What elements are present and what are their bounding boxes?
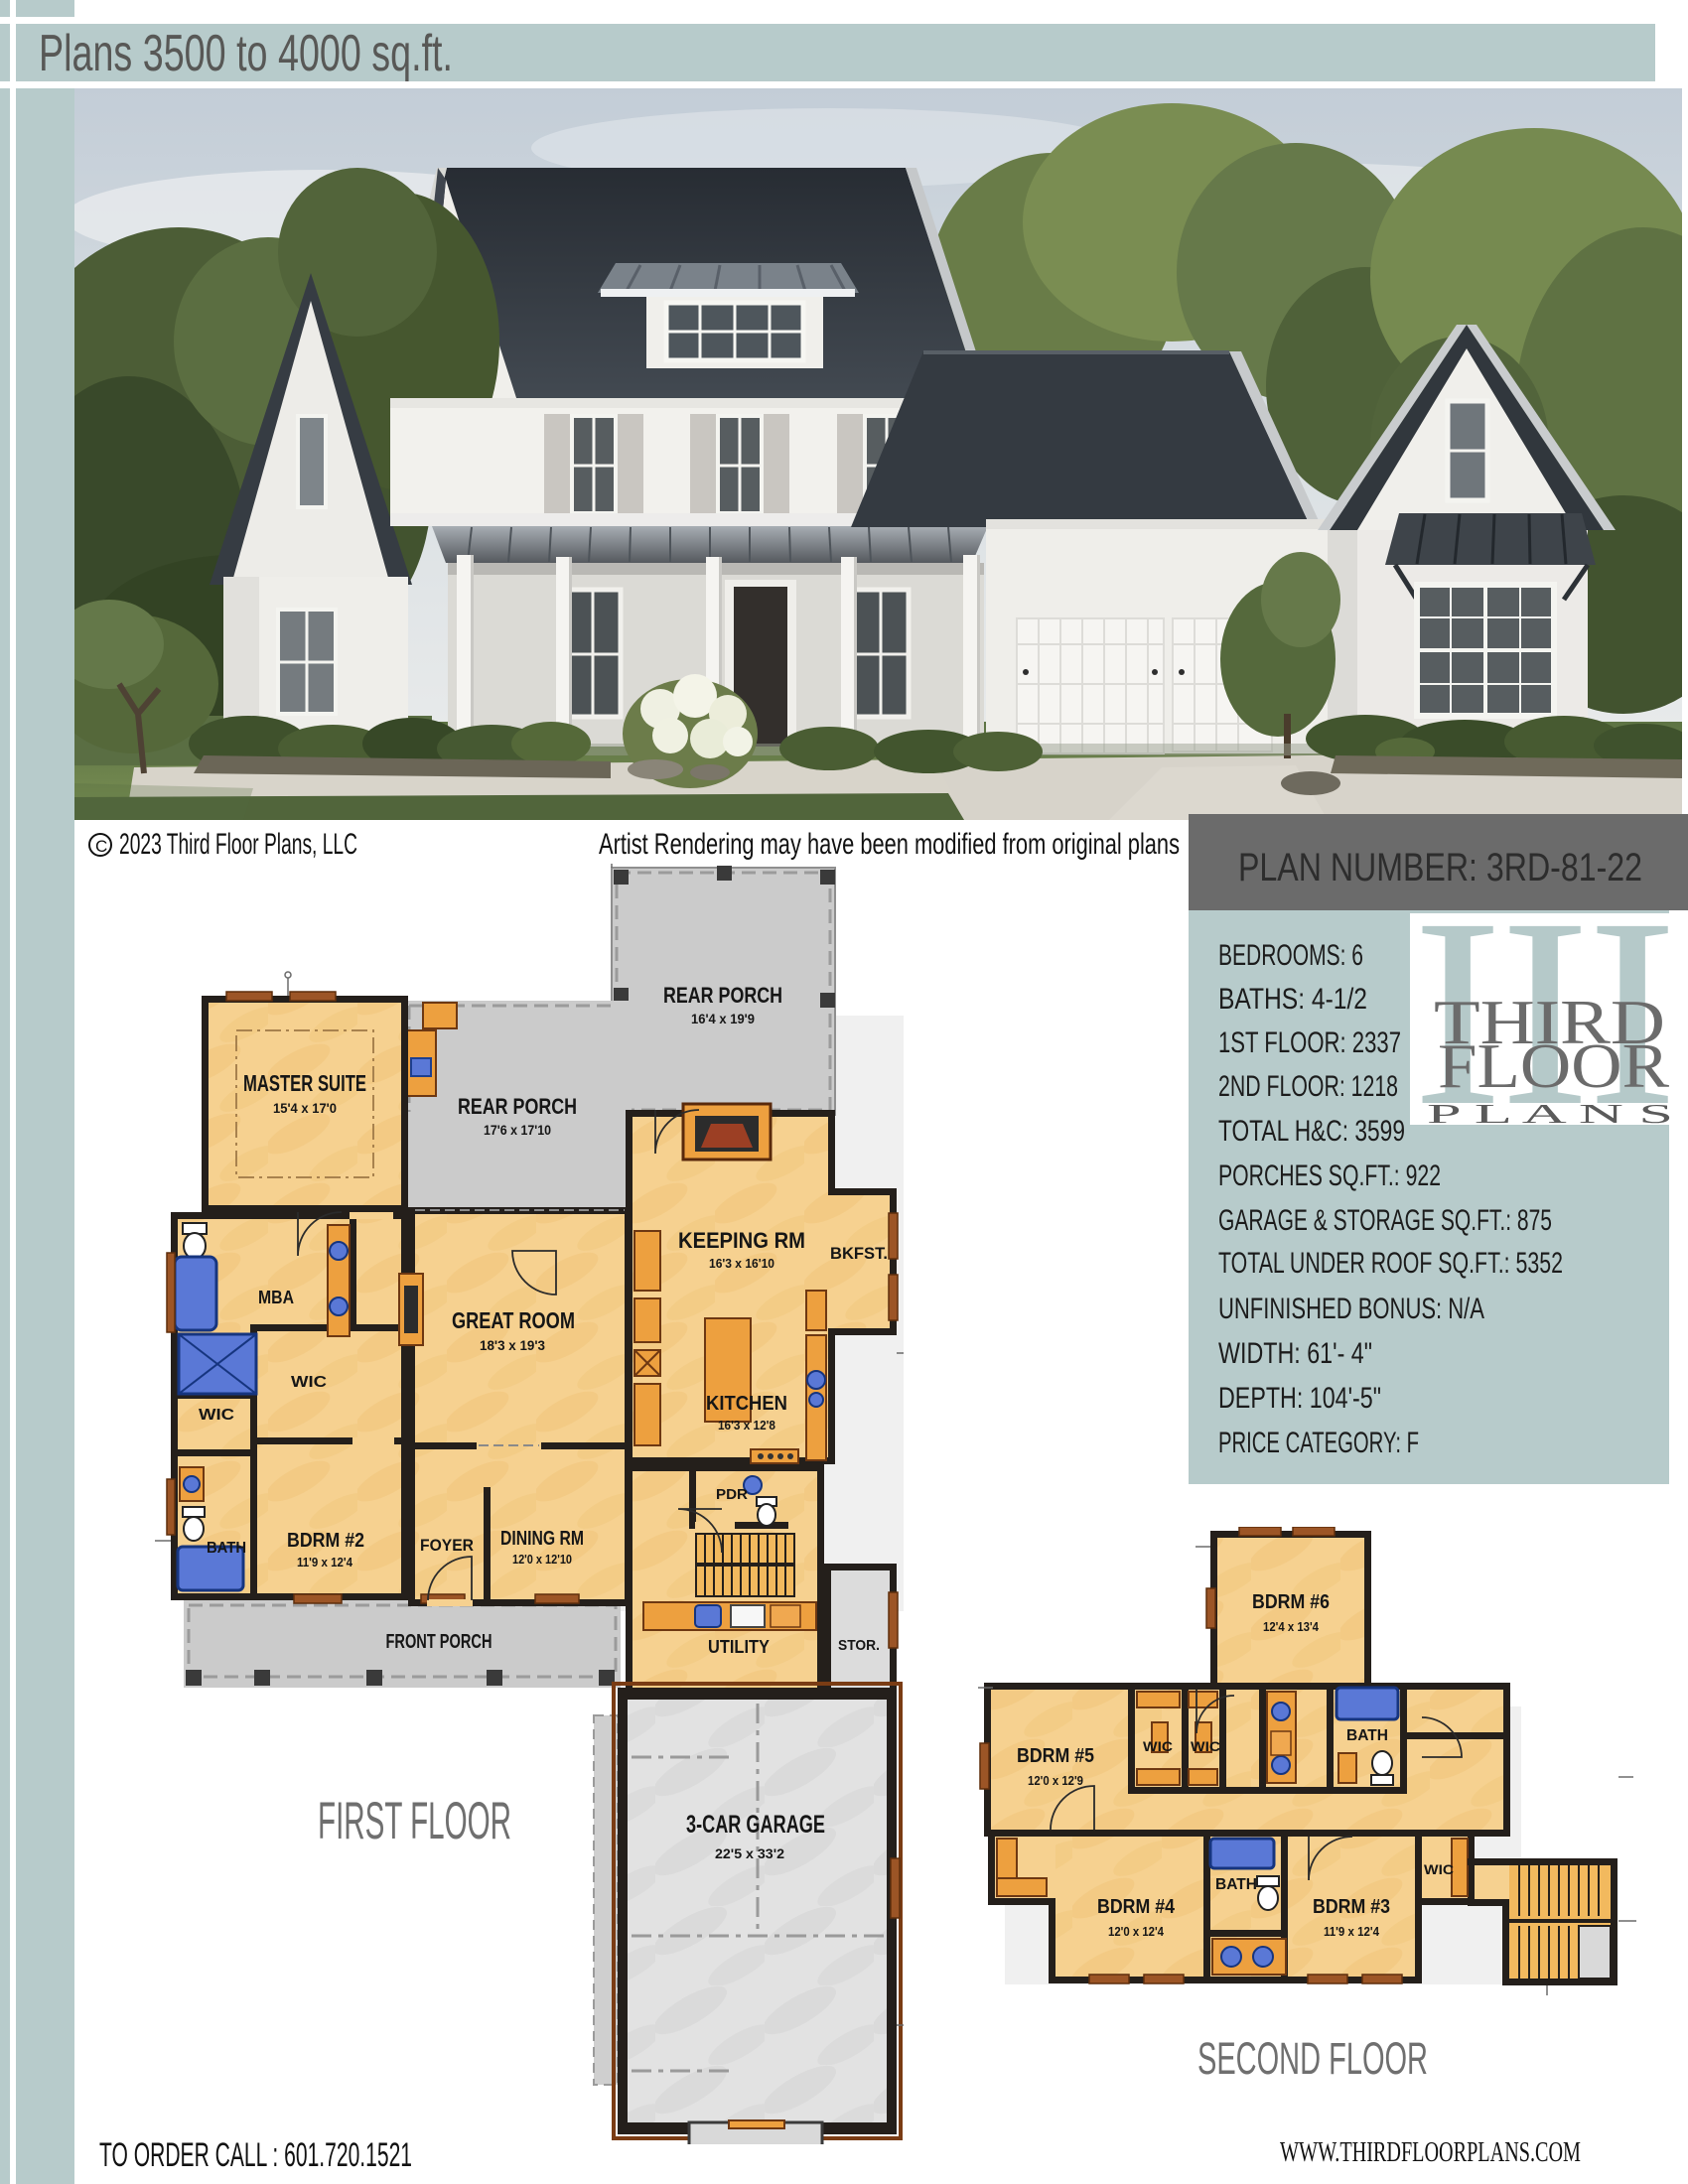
svg-text:UNFINISHED BONUS: N/A: UNFINISHED BONUS: N/A [1218, 1293, 1484, 1325]
svg-text:WIC: WIC [199, 1407, 235, 1424]
svg-text:12'0 x 12'4: 12'0 x 12'4 [1108, 1924, 1165, 1939]
svg-text:BATH: BATH [207, 1540, 246, 1557]
svg-text:BATH: BATH [1346, 1727, 1388, 1744]
svg-text:BATH: BATH [1215, 1876, 1257, 1893]
svg-text:BATHS: 4-1/2: BATHS: 4-1/2 [1218, 983, 1367, 1016]
svg-text:DINING RM: DINING RM [500, 1528, 584, 1550]
svg-text:P L A N S: P L A N S [1427, 1099, 1670, 1125]
svg-text:REAR PORCH: REAR PORCH [663, 983, 782, 1008]
svg-text:16'3 x 16'10: 16'3 x 16'10 [709, 1256, 774, 1271]
svg-text:22'5 x 33'2: 22'5 x 33'2 [715, 1845, 784, 1861]
svg-text:WIDTH: 61'- 4": WIDTH: 61'- 4" [1218, 1337, 1372, 1370]
svg-text:11'9 x 12'4: 11'9 x 12'4 [297, 1555, 353, 1570]
svg-text:SECOND FLOOR: SECOND FLOOR [1197, 2033, 1428, 2084]
svg-text:MASTER SUITE: MASTER SUITE [243, 1070, 366, 1096]
svg-text:2ND FLOOR: 1218: 2ND FLOOR: 1218 [1218, 1070, 1398, 1103]
svg-text:BKFST.: BKFST. [830, 1244, 888, 1263]
svg-text:REAR PORCH: REAR PORCH [458, 1094, 577, 1119]
svg-text:GARAGE & STORAGE SQ.FT.: 875: GARAGE & STORAGE SQ.FT.: 875 [1218, 1204, 1552, 1237]
svg-text:18'3 x 19'3: 18'3 x 19'3 [480, 1337, 545, 1353]
svg-text:GREAT ROOM: GREAT ROOM [452, 1307, 575, 1333]
svg-text:WIC: WIC [1143, 1738, 1173, 1754]
svg-text:STOR.: STOR. [838, 1637, 880, 1654]
svg-text:C: C [95, 837, 107, 856]
svg-text:16'4 x 19'9: 16'4 x 19'9 [691, 1011, 755, 1026]
svg-text:BDRM #6: BDRM #6 [1252, 1591, 1330, 1613]
svg-text:FRONT PORCH: FRONT PORCH [386, 1631, 492, 1653]
svg-text:15'4 x 17'0: 15'4 x 17'0 [273, 1100, 337, 1116]
svg-text:WWW.THIRDFLOORPLANS.COM: WWW.THIRDFLOORPLANS.COM [1280, 2136, 1581, 2168]
svg-text:MBA: MBA [258, 1288, 294, 1307]
svg-text:12'0 x 12'9: 12'0 x 12'9 [1028, 1773, 1083, 1788]
svg-text:12'0 x 12'10: 12'0 x 12'10 [512, 1552, 572, 1567]
svg-text:WIC: WIC [1191, 1738, 1220, 1754]
svg-text:11'9 x 12'4: 11'9 x 12'4 [1324, 1924, 1380, 1939]
svg-text:Plans 3500 to 4000 sq.ft.: Plans 3500 to 4000 sq.ft. [39, 25, 453, 82]
svg-text:PORCHES SQ.FT.: 922: PORCHES SQ.FT.: 922 [1218, 1160, 1441, 1192]
svg-text:2023 Third Floor Plans, LLC: 2023 Third Floor Plans, LLC [119, 828, 357, 861]
svg-text:TOTAL UNDER ROOF SQ.FT.: 5352: TOTAL UNDER ROOF SQ.FT.: 5352 [1218, 1247, 1563, 1280]
svg-text:3-CAR GARAGE: 3-CAR GARAGE [686, 1811, 825, 1839]
svg-text:BEDROOMS: 6: BEDROOMS: 6 [1218, 939, 1363, 972]
svg-text:1ST FLOOR: 2337: 1ST FLOOR: 2337 [1218, 1026, 1401, 1059]
svg-text:BDRM #3: BDRM #3 [1313, 1896, 1390, 1918]
svg-text:17'6 x 17'10: 17'6 x 17'10 [484, 1122, 551, 1138]
svg-text:KITCHEN: KITCHEN [706, 1393, 787, 1415]
svg-text:DEPTH: 104'-5": DEPTH: 104'-5" [1218, 1382, 1381, 1415]
svg-text:16'3 x 12'8: 16'3 x 12'8 [718, 1418, 775, 1433]
svg-text:PLAN NUMBER: 3RD-81-22: PLAN NUMBER: 3RD-81-22 [1238, 846, 1642, 889]
svg-text:TOTAL H&C: 3599: TOTAL H&C: 3599 [1218, 1115, 1405, 1148]
svg-text:FOYER: FOYER [420, 1536, 474, 1555]
svg-text:WIC: WIC [291, 1374, 328, 1391]
svg-text:WIC: WIC [1424, 1861, 1454, 1877]
svg-text:12'4 x 13'4: 12'4 x 13'4 [1263, 1619, 1320, 1634]
svg-text:BDRM #5: BDRM #5 [1017, 1745, 1094, 1767]
svg-text:Artist Rendering may have been: Artist Rendering may have been modified … [599, 828, 1180, 861]
svg-text:BDRM #2: BDRM #2 [287, 1530, 364, 1552]
svg-text:UTILITY: UTILITY [708, 1637, 770, 1657]
svg-text:FIRST FLOOR: FIRST FLOOR [318, 1792, 511, 1850]
svg-text:FLOOR: FLOOR [1438, 1031, 1669, 1101]
svg-text:KEEPING RM: KEEPING RM [678, 1228, 805, 1253]
svg-text:BDRM #4: BDRM #4 [1097, 1896, 1176, 1918]
svg-text:PRICE CATEGORY: F: PRICE CATEGORY: F [1218, 1427, 1419, 1459]
svg-text:PDR: PDR [716, 1486, 748, 1503]
svg-text:TO ORDER CALL : 601.720.1521: TO ORDER CALL : 601.720.1521 [99, 2136, 412, 2174]
